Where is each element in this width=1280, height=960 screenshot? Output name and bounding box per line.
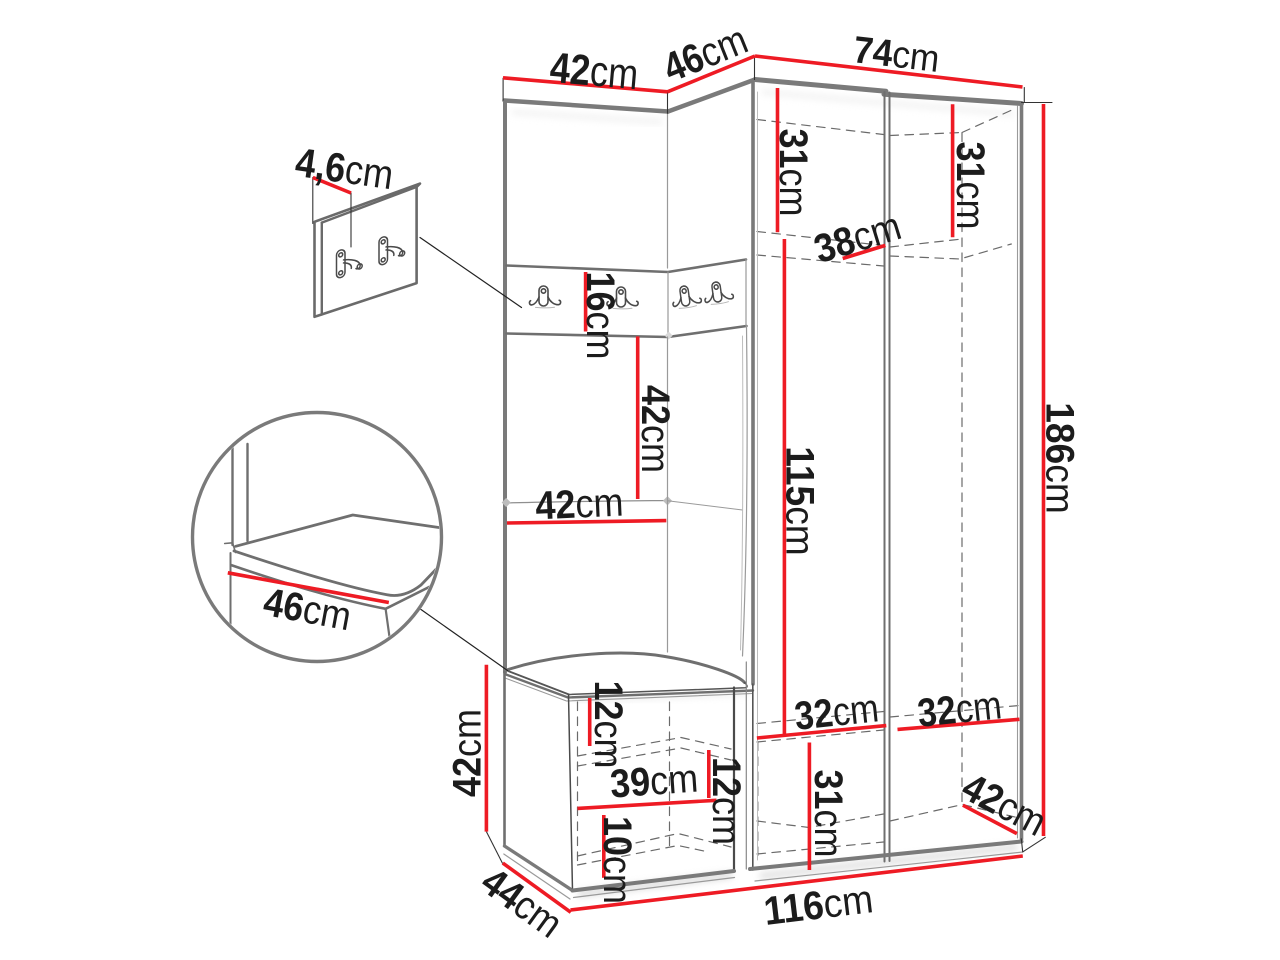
svg-text:16cm: 16cm [578,271,622,359]
svg-text:32cm: 32cm [792,685,880,739]
svg-text:32cm: 32cm [915,682,1003,736]
svg-text:31cm: 31cm [806,769,850,857]
svg-text:10cm: 10cm [595,816,639,904]
svg-text:42cm: 42cm [446,709,490,797]
svg-text:12cm: 12cm [704,757,748,845]
svg-text:42cm: 42cm [548,44,640,99]
svg-text:31cm: 31cm [771,128,815,216]
svg-text:39cm: 39cm [609,757,700,807]
svg-text:12cm: 12cm [586,680,630,768]
svg-text:42cm: 42cm [535,481,625,529]
svg-text:115cm: 115cm [777,446,822,556]
svg-text:186cm: 186cm [1037,402,1082,514]
svg-text:31cm: 31cm [948,141,992,229]
svg-text:42cm: 42cm [633,385,677,473]
